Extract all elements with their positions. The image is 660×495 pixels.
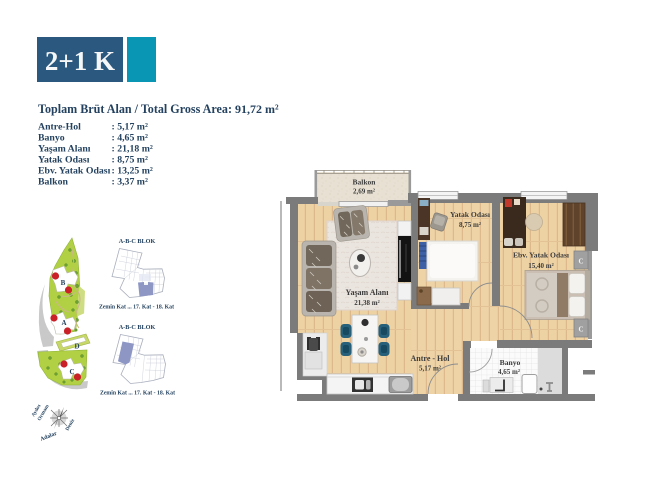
svg-text:C: C: [578, 326, 583, 334]
svg-text:: 5,17 m²: : 5,17 m²: [112, 122, 148, 133]
svg-text:Banyo: Banyo: [38, 133, 65, 144]
svg-text:: 3,37 m²: : 3,37 m²: [112, 177, 148, 188]
svg-text:Yatak Odası: Yatak Odası: [450, 210, 490, 219]
svg-text:15,40 m²: 15,40 m²: [528, 262, 553, 270]
svg-text:4,65 m²: 4,65 m²: [498, 368, 520, 376]
svg-text:: 8,75 m²: : 8,75 m²: [112, 155, 148, 166]
svg-text:Zemin Kat ... 17. Kat - 18. Ka: Zemin Kat ... 17. Kat - 18. Kat: [100, 391, 175, 397]
svg-text:Yaşam Alanı: Yaşam Alanı: [38, 144, 91, 155]
svg-text:Zemin Kat ... 17. Kat - 18. Ka: Zemin Kat ... 17. Kat - 18. Kat: [99, 305, 174, 311]
svg-text:Balkon: Balkon: [353, 178, 377, 187]
svg-text:Ebv. Yatak Odası: Ebv. Yatak Odası: [513, 251, 569, 260]
svg-text:A-B-C BLOK: A-B-C BLOK: [119, 238, 156, 245]
svg-text:D: D: [74, 343, 79, 351]
svg-text:: 4,65 m²: : 4,65 m²: [112, 133, 148, 144]
svg-text:8,75 m²: 8,75 m²: [459, 221, 481, 229]
svg-text:Antre - Hol: Antre - Hol: [411, 354, 451, 363]
svg-text:A: A: [61, 319, 66, 327]
svg-text:Banyo: Banyo: [500, 358, 521, 367]
svg-text:5,17 m²: 5,17 m²: [419, 365, 441, 373]
svg-text:Yatak Odası: Yatak Odası: [38, 155, 90, 166]
svg-text:: 13,25 m²: : 13,25 m²: [112, 166, 153, 177]
svg-text:Ebv. Yatak Odası: Ebv. Yatak Odası: [38, 166, 111, 177]
svg-text:Toplam Brüt Alan / Total Gross: Toplam Brüt Alan / Total Gross Area: 91,…: [38, 102, 279, 116]
svg-text:C: C: [69, 368, 74, 376]
svg-text:Balkon: Balkon: [38, 177, 69, 188]
svg-text:B: B: [61, 279, 66, 287]
svg-text:2+1 K: 2+1 K: [45, 46, 115, 76]
svg-text:Antre-Hol: Antre-Hol: [38, 122, 81, 133]
svg-text:2,69 m²: 2,69 m²: [353, 188, 375, 196]
svg-text:C: C: [578, 258, 583, 266]
svg-text:21,38 m²: 21,38 m²: [354, 299, 379, 307]
svg-text:: 21,18 m²: : 21,18 m²: [112, 144, 153, 155]
svg-text:Yaşam Alanı: Yaşam Alanı: [346, 288, 390, 297]
svg-text:A-B-C BLOK: A-B-C BLOK: [119, 324, 156, 331]
